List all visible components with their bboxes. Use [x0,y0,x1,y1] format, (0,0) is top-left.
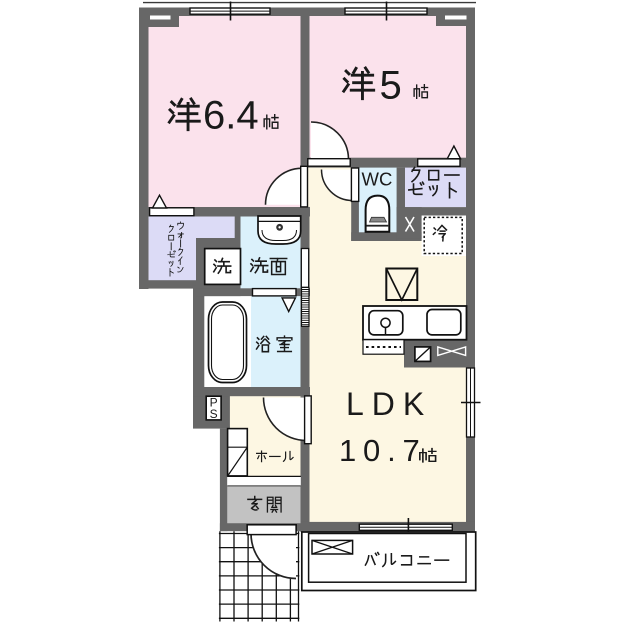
svg-text:6.4: 6.4 [203,94,259,138]
svg-text:LDK: LDK [346,386,432,422]
svg-text:10.7: 10.7 [339,433,427,468]
svg-text:5: 5 [380,64,402,108]
svg-text:S: S [210,407,218,421]
svg-text:WC: WC [362,169,393,190]
